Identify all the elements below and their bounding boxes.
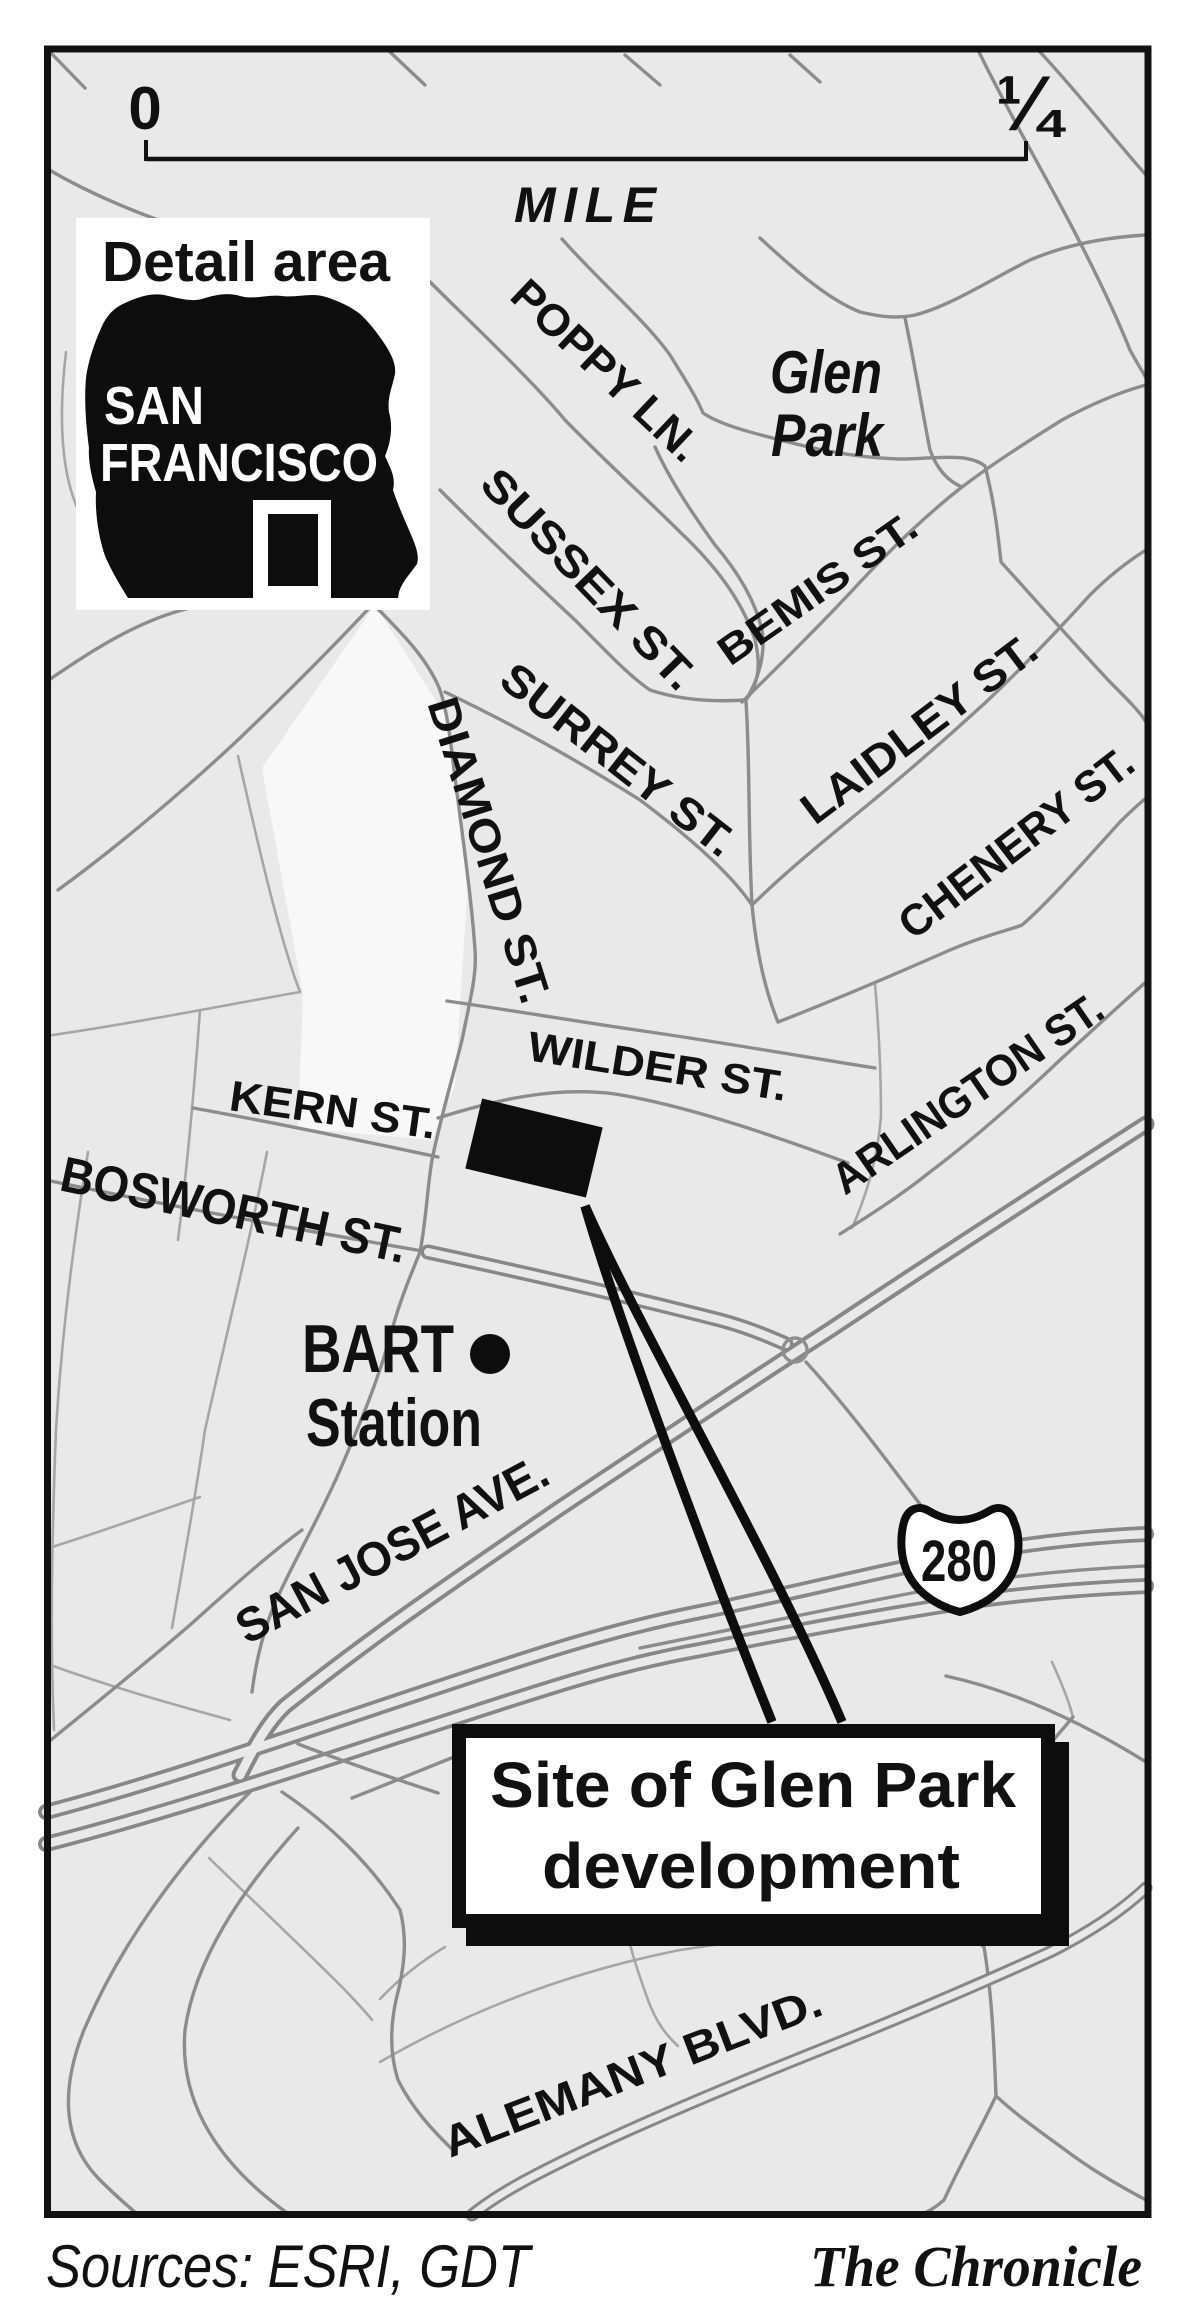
svg-text:Detail area: Detail area (102, 230, 391, 294)
svg-text:0: 0 (128, 75, 161, 142)
svg-text:development: development (542, 1830, 960, 1902)
svg-text:¼: ¼ (995, 59, 1066, 147)
svg-text:The Chronicle: The Chronicle (810, 2234, 1142, 2299)
svg-text:MILE: MILE (514, 177, 658, 233)
svg-text:SAN: SAN (104, 376, 204, 436)
svg-text:BART: BART (302, 1311, 454, 1387)
svg-text:Station: Station (306, 1385, 482, 1461)
svg-text:Sources: ESRI, GDT: Sources: ESRI, GDT (46, 2233, 534, 2300)
svg-text:Glen: Glen (770, 339, 882, 406)
svg-text:280: 280 (921, 1529, 997, 1594)
svg-text:Park: Park (771, 402, 885, 469)
svg-text:FRANCISCO: FRANCISCO (100, 433, 378, 493)
svg-text:Site of Glen Park: Site of Glen Park (490, 1749, 1016, 1821)
